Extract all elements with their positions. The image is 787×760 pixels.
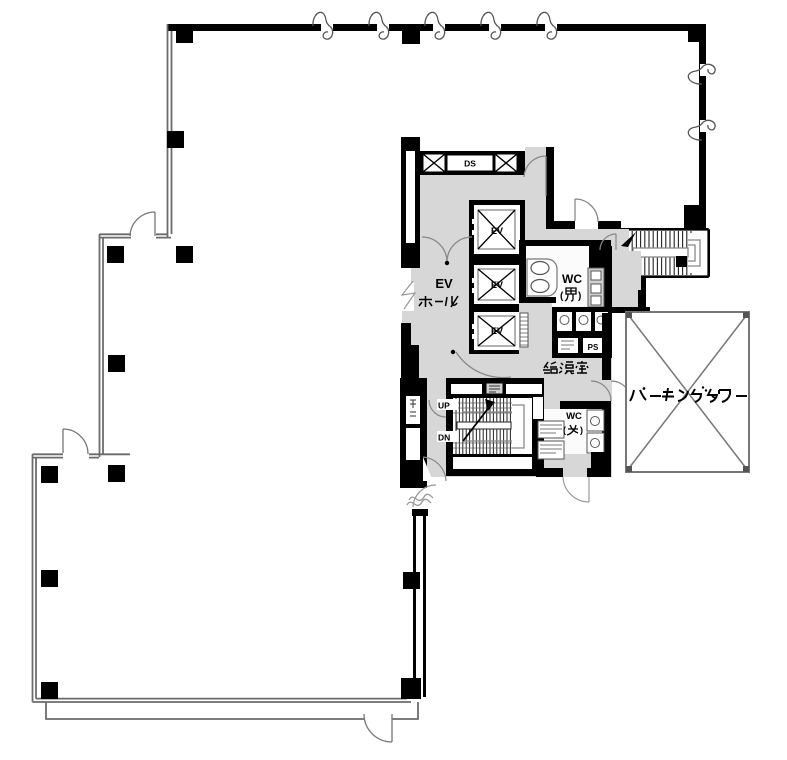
svg-text:EV: EV — [491, 326, 503, 336]
svg-text:): ) — [580, 425, 583, 435]
svg-text:PS: PS — [588, 343, 599, 352]
svg-text:EV: EV — [435, 276, 453, 291]
svg-text:UP: UP — [438, 401, 450, 411]
svg-text:WC: WC — [566, 411, 582, 422]
svg-text:EV: EV — [491, 280, 503, 290]
svg-text:WC: WC — [562, 272, 582, 286]
svg-text:): ) — [578, 291, 581, 302]
svg-text:DS: DS — [464, 159, 476, 169]
svg-text:EV: EV — [491, 226, 503, 236]
svg-text:DN: DN — [438, 433, 450, 443]
svg-text:(: ( — [563, 425, 566, 435]
